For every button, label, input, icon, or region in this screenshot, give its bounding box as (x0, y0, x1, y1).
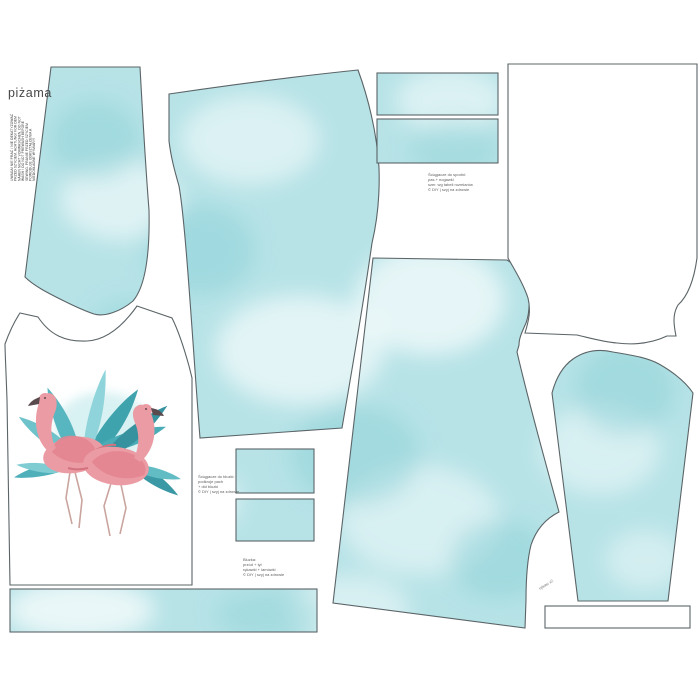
note-line: © DIY | szyj na zdrowie (198, 489, 240, 494)
pattern-sheet: piżama UWAGA! NIE PRAĆ / NIE DEKATYZOWAĆ… (0, 0, 700, 700)
waistband-note: Ściągacze do spodni: pas + nogawki szer.… (428, 172, 473, 192)
note-line: © DIY | szyj na zdrowie (428, 187, 470, 192)
piece-top-front (5, 306, 192, 585)
piece-top-back (508, 64, 697, 344)
care-note: UWAGA! NIE PRAĆ / NIE DEKATYZOWAĆ PRZED … (9, 113, 36, 181)
pattern-canvas: piżama UWAGA! NIE PRAĆ / NIE DEKATYZOWAĆ… (0, 0, 700, 700)
note-line: © DIY | szyj na zdrowie (243, 572, 285, 577)
cuff-note: Ściągacze do bluzki: podkroje pach + dół… (198, 474, 240, 494)
piece-neckband-strip (545, 606, 690, 628)
care-note-line: NIEDOKŁADNE WYMIARY! (32, 138, 36, 181)
top-note: Bluzka: przód + tył rękawki + lamówki © … (243, 557, 285, 577)
sleeve-note: rękaw x2 (538, 578, 555, 591)
product-label: piżama (8, 86, 52, 100)
